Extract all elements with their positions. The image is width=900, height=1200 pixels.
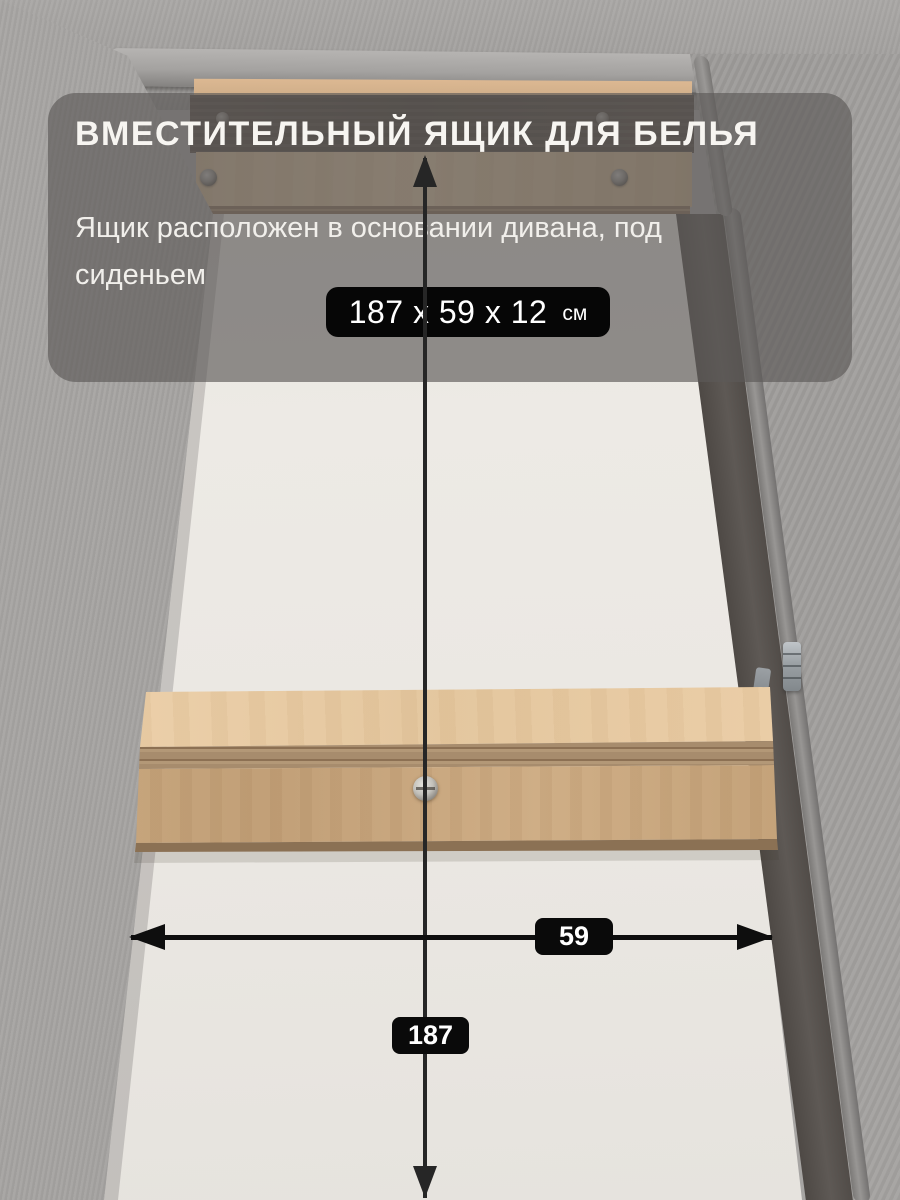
arrow-up-icon [413, 155, 437, 187]
dimensions-value: 187 х 59 х 12 [349, 294, 548, 331]
width-badge: 59 [535, 918, 613, 955]
width-value: 59 [559, 921, 589, 952]
length-value: 187 [408, 1020, 453, 1051]
horizontal-dimension-arrow-line [131, 935, 772, 940]
info-panel: ВМЕСТИТЕЛЬНЫЙ ЯЩИК ДЛЯ БЕЛЬЯ Ящик распол… [48, 93, 852, 382]
dimensions-badge: 187 х 59 х 12 см [326, 287, 610, 337]
sofa-storage-product-photo: ВМЕСТИТЕЛЬНЫЙ ЯЩИК ДЛЯ БЕЛЬЯ Ящик распол… [0, 0, 900, 1200]
dimensions-unit: см [562, 298, 587, 326]
subtitle-text: Ящик расположен в основании дивана, под … [75, 205, 735, 299]
arrow-down-icon [413, 1166, 437, 1198]
arrow-left-icon [129, 924, 165, 950]
hinge-icon [783, 642, 801, 691]
page-title: ВМЕСТИТЕЛЬНЫЙ ЯЩИК ДЛЯ БЕЛЬЯ [75, 115, 835, 153]
arrow-right-icon [737, 924, 773, 950]
length-badge: 187 [392, 1017, 469, 1054]
